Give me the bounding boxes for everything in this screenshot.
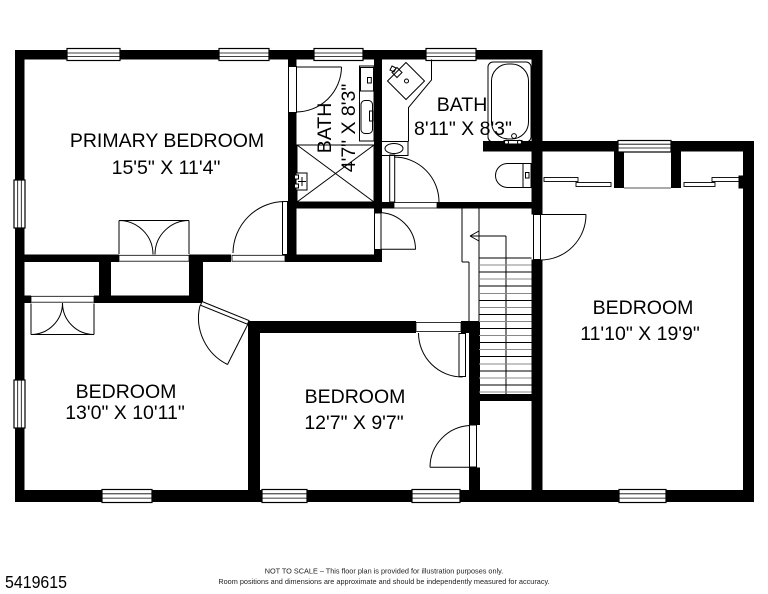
svg-text:BEDROOM: BEDROOM <box>593 297 694 319</box>
svg-text:8'11" X 8'3": 8'11" X 8'3" <box>414 118 512 140</box>
svg-text:BEDROOM: BEDROOM <box>76 381 177 403</box>
svg-text:NOT TO SCALE – This floor plan: NOT TO SCALE – This floor plan is provid… <box>265 567 504 576</box>
svg-text:13'0" X 10'11": 13'0" X 10'11" <box>65 402 185 424</box>
svg-text:PRIMARY BEDROOM: PRIMARY BEDROOM <box>70 130 264 152</box>
svg-text:11'10" X 19'9": 11'10" X 19'9" <box>580 323 700 345</box>
svg-text:BATH: BATH <box>314 103 336 154</box>
svg-text:5419615: 5419615 <box>5 572 67 592</box>
svg-text:BATH: BATH <box>437 94 488 116</box>
svg-text:4'7" X 8'3": 4'7" X 8'3" <box>338 84 360 173</box>
svg-text:12'7" X 9'7": 12'7" X 9'7" <box>304 412 403 434</box>
svg-text:15'5" X 11'4": 15'5" X 11'4" <box>112 157 221 179</box>
svg-text:Room positions and dimensions: Room positions and dimensions are approx… <box>218 577 549 586</box>
svg-text:BEDROOM: BEDROOM <box>305 386 406 408</box>
